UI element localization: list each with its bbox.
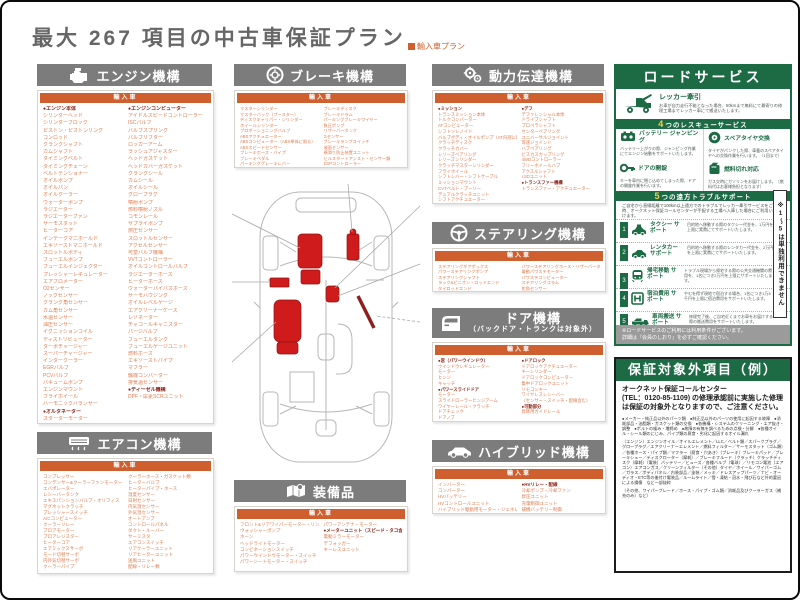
exclusions-lead: オークネット保証コールセンター (TEL：0120-85-1109) の修理承認… <box>622 385 784 412</box>
parts-list-item: ISCバルブ <box>128 120 208 127</box>
parts-list-item: クランクシャフト <box>43 142 123 149</box>
section-header-powertrain: 動力伝達機構 <box>432 64 604 86</box>
imported-car-bar: 輸入車 <box>435 345 603 355</box>
parts-list-item: 燃圧センサー <box>128 228 208 235</box>
parts-list-item: タイロッドエンド <box>438 286 517 291</box>
rescue-cell-battery: バッテリー ジャンピング バッテリー上がりの際、ジャンピング作業にてエンジン始動… <box>616 129 703 160</box>
section-header-aircon: エアコン機構 <box>37 432 212 454</box>
parts-list-item: サーモスタット <box>43 221 123 228</box>
parts-list-item: コンロッド <box>43 135 123 142</box>
parts-list-item: バルブスプリング <box>128 128 208 135</box>
parts-list-item: ドアノブ <box>438 415 517 421</box>
page-title: 最大 267 項目の中古車保証プラン <box>32 22 406 52</box>
parts-list-item: 昇降用ガイドレール <box>522 409 601 415</box>
parts-list-item: トランスファー・アクチュエーター <box>522 186 601 192</box>
trouble-support-bar: 5つの遠方トラブルサポート <box>616 191 790 201</box>
section-header-equipment: 装備品 <box>234 480 406 502</box>
parts-list-item: インタークーラー <box>43 358 123 365</box>
parts-list-item: コモンレール <box>128 214 208 221</box>
parts-list-item: バキュームポンプ <box>43 380 123 387</box>
trouble-row-rentacar: 2 レンタカー サポート 目的地へ移動する際のレンタカー代金を、2万円を上限に実… <box>616 242 790 265</box>
battery-icon <box>620 131 636 144</box>
section-box-equipment: 輸入車 フロント&リアワイパーモーター・リンクウォッシャーポンプホーンヘッドライ… <box>234 506 408 572</box>
parts-list-item: ヘッドカバーガスケット <box>128 164 208 171</box>
parts-list-item: （センサー・スイッチ・配線含む） <box>522 398 601 404</box>
parts-list-item: ノックセンサー <box>43 293 123 300</box>
parts-list-item: ヘッドガスケット <box>128 156 208 163</box>
parts-list: パワーアンテナ・モーター●メーターユニット（スピード・タコ含む）電動ミラーモータ… <box>324 522 403 565</box>
imported-car-bar: 輸入車 <box>237 509 405 519</box>
parts-list-item: インテークマニホールド <box>43 236 123 243</box>
car-diagram <box>230 184 422 476</box>
parts-list-item: 舵角センサー <box>522 286 601 291</box>
parts-list-item: 触媒コンバーター <box>128 373 208 380</box>
parts-list-item: シリンダーブロック <box>43 120 123 127</box>
plan-badge-square-icon <box>408 43 415 50</box>
parts-list-item: 配線・リレー類 <box>128 564 208 570</box>
train-number-3: 3 <box>620 269 628 289</box>
parts-list-item: カム角センサー <box>43 308 123 315</box>
section-box-brake: 輸入車 マスターシリンダーマスターバック（ブースター）ディスクキャリパー・シリン… <box>234 90 408 168</box>
parts-list-item: PCVバルブ <box>43 373 123 380</box>
aircon-icon <box>67 435 91 451</box>
parts-list-item: エアクリーナーケース <box>128 308 208 315</box>
imported-car-bar: 輸入車 <box>40 461 211 471</box>
parts-list-item: フューエルインジェクター <box>43 264 123 271</box>
section-title: 装備品 <box>313 482 355 501</box>
parts-list-item: バルブリフター <box>128 135 208 142</box>
hotel-icon <box>631 292 644 310</box>
imported-car-bar: 輸入車 <box>40 93 211 103</box>
parts-list-item: ラジエーターホース <box>128 272 208 279</box>
parts-list-item: クーラーパイプ <box>43 564 123 570</box>
side-note-tab: ※1〜5は単独利用できません <box>773 190 787 318</box>
parts-list-item: ヒーターホース <box>128 279 208 286</box>
parts-list-item: オイルコントロールバルブ <box>128 264 208 271</box>
parts-list: マスターシリンダーマスターバック（ブースター）ディスクキャリパー・シリンダーホイ… <box>240 106 319 167</box>
trouble-intro: ご自宅から直線距離で100km以上遠方でのトラブルでレッカー牽引サービスをご利用… <box>616 201 790 219</box>
parts-list: ●ドアロックドアロックアクチュエーターキーシリンダードアロックコンピューター集中… <box>522 358 601 421</box>
towing-row: レッカー牽引 お車が自力走行不能となった場合、50kmまで無料にて最寄りの修理工… <box>616 89 790 119</box>
section-title: ドア機構 <box>505 312 561 326</box>
parts-list-item: タイミングベルト <box>43 156 123 163</box>
parts-list-item: 水温センサー <box>43 315 123 322</box>
parts-list-item: エキゾーストマニホールド <box>43 243 123 250</box>
engine-icon <box>68 67 90 83</box>
section-title: ステアリング機構 <box>474 224 586 243</box>
section-box-door: 輸入車 ●窓（パワーウインドウ）ウインドウレギュレーターモーターヒンジキャッチ●… <box>432 342 606 422</box>
parts-list-item: オイルポンプ <box>43 178 123 185</box>
exclusions-footnote: （その他、ワイパーブレード／ホース・パイプ・ゴム類／消耗品及びクーラーガス（補充… <box>622 488 784 498</box>
parts-list-item: ●エンジン本体 <box>43 106 123 113</box>
brake-disc-icon <box>266 66 284 84</box>
section-header-door: ドア機構 （バックドア・トランクは対象外） <box>432 308 604 338</box>
parts-list-item: 排気温センサー <box>128 380 208 387</box>
parts-list-item: 可変バルブ機構 <box>128 250 208 257</box>
rescue-cell-key: ドアの開錠 キーを車内に閉じ込めてしまった際、ドアの開錠作業を行います。 <box>616 160 703 191</box>
parts-list-item: キーレスユニット <box>324 547 403 553</box>
parts-list-item: スロットルセンサー <box>128 236 208 243</box>
parts-list-item: カムシャフト <box>43 149 123 156</box>
parts-list-item: エンジンマウント <box>43 387 123 394</box>
parts-list-item: 油圧センサー <box>43 322 123 329</box>
parts-list-item: ●オルタネーター <box>43 409 123 416</box>
parts-list-item: イグニッションコイル <box>43 329 123 336</box>
parts-list-item: O2センサー <box>43 286 123 293</box>
section-header-steering: ステアリング機構 <box>432 222 604 244</box>
parts-list: ステアリングギアボックスパワーステアリングポンプステアリングシャフトラック&ピニ… <box>438 264 517 291</box>
rescue-cell-tire: スペアタイヤ交換 タイヤがパンクした際、車載のスペアタイヤへの交換作業を行います… <box>703 129 790 160</box>
hybrid-car-icon <box>446 444 472 458</box>
parts-list-item: ディストリビューター <box>43 337 123 344</box>
parts-list-item: 補機バッテリー制御 <box>522 507 601 513</box>
parts-list-item: シリンダーヘッド <box>43 113 123 120</box>
towing-label: レッカー牽引 <box>659 92 784 102</box>
parts-list-item: DPF・尿素SCRユニット <box>128 394 208 401</box>
section-header-brake: ブレーキ機構 <box>234 64 406 86</box>
parts-list: フロント&リアワイパーモーター・リンクウォッシャーポンプホーンヘッドライトモータ… <box>240 522 319 565</box>
parts-list-item: パーキングブレーキレバー <box>240 161 319 167</box>
parts-list-item: タイミングチェーン <box>43 164 123 171</box>
parts-list-item: グロープラグ <box>128 192 208 199</box>
parts-list-item: ABSコンピューター（ABS単体に限る） <box>240 139 319 145</box>
section-box-steering: 輸入車 ステアリングギアボックスパワーステアリングポンプステアリングシャフトラッ… <box>432 248 606 292</box>
towing-desc: お車が自力走行不能となった場合、50kmまで無料にて最寄りの修理工場までレッカー… <box>659 103 784 113</box>
parts-list-item: フューエルタンク <box>128 337 208 344</box>
parts-list-item: ラッシュアジャスター <box>128 149 208 156</box>
parts-list-item: スーパーチャージャー <box>43 351 123 358</box>
parts-list-item: ウォーターポンプ <box>43 200 123 207</box>
rescue-services-bar: 4つのレスキューサービス <box>616 119 790 129</box>
road-service-panel: ロードサービス レッカー牽引 お車が自力走行不能となった場合、50kmまで無料に… <box>614 64 792 346</box>
parts-list: インバーターコンバーターHVバッテリーHVコントロールユニットハイブリッド駆動用… <box>438 482 517 513</box>
road-service-title: ロードサービス <box>616 66 790 89</box>
parts-list-item: レゾネーター <box>128 315 208 322</box>
parts-list-item: オイルシール <box>128 185 208 192</box>
parts-list: パワーステアリングホース・リザーバータンク電動パワステモーターパワステコンピュー… <box>522 264 601 291</box>
parts-list-item: エキゾーストパイプ <box>128 358 208 365</box>
imported-car-bar: 輸入車 <box>435 251 603 261</box>
section-box-powertrain: 輸入車 ●ミッショントランスミッション本体トルクコンバーターATコンピューターシ… <box>432 90 606 204</box>
parts-list: ●デフデファレンシャル本体ドライブシャフトプロペラシャフトセンターベアリングユニ… <box>522 106 601 203</box>
parts-list: ブレーキディスクブレーキドラムパーキングブレーキワイヤー負圧ポンプリザーバータン… <box>324 106 403 167</box>
parts-list-item: クランク角センサー <box>43 300 123 307</box>
parts-list-item: スロットルボディ <box>43 250 123 257</box>
trouble-row-hotel: 4 宿泊費用 サポート やむを得ず現地で宿泊する場合、1名につき1万5千円を上限… <box>616 288 790 311</box>
parts-list-item: アイドルスピードコントローラー <box>128 113 208 120</box>
taxi-icon <box>631 223 647 241</box>
parts-list: ●HVリレー・配線冷却ポンプ・冷却ファン昇圧ユニット充電制御ユニット補機バッテリ… <box>522 482 601 513</box>
door-icon <box>439 313 463 333</box>
imported-car-bar: 輸入車 <box>237 93 405 103</box>
parts-list-item: フライホイール <box>43 394 123 401</box>
section-box-aircon: 輸入車 コンプレッサーコンデンサー&クーラーファンモーターエバポレーターレシーバ… <box>37 458 214 574</box>
section-title: エアコン機構 <box>97 434 181 453</box>
exclusions-bullets: ●メーカー・純正品以外のパーツ類 ●純正品以外のパーツの使用に起因する故障 ●消… <box>622 416 784 436</box>
parts-list-item: パージバルブ <box>128 329 208 336</box>
parts-list-item: 噴射ポンプ <box>128 200 208 207</box>
parts-list-item: ベルトテンショナー <box>43 171 123 178</box>
parts-list-item: カムシール <box>128 178 208 185</box>
parts-list: クーラーホース・ガスケット類ヒーターバルブヒーターパイプ・ホース温度センサー日射… <box>128 474 208 570</box>
gears-icon <box>463 66 483 84</box>
parts-list-item: パワーシートモーター・スイッチ <box>240 559 319 565</box>
exclusions-dense-text: （エンジン）エンジンオイル／オイルエレメント／LLC／ベルト類／スパークプラグ／… <box>622 439 784 485</box>
imported-car-bar: 輸入車 <box>435 93 603 103</box>
parts-list-item: ヒーターコア <box>43 228 123 235</box>
parts-list: コンプレッサーコンデンサー&クーラーファンモーターエバポレーターレシーバータンク… <box>43 474 123 570</box>
parts-list-item: VVTコントローラー <box>128 257 208 264</box>
plan-badge: 輸入車プラン <box>408 41 465 52</box>
warranty-plan-poster: 最大 267 項目の中古車保証プラン 輸入車プラン エンジン機構 輸入車 ●エン… <box>0 0 800 600</box>
section-title: ハイブリッド機構 <box>478 442 590 461</box>
section-box-hybrid: 輸入車 インバーターコンバーターHVバッテリーHVコントロールユニットハイブリッ… <box>432 466 606 514</box>
parts-list-item: ピストン・ピストンリング <box>43 128 123 135</box>
parts-list-item: サーモハウジング <box>128 293 208 300</box>
parts-list-item: エアフロメーター <box>43 279 123 286</box>
parts-list-item: クランクシール <box>128 171 208 178</box>
section-title: ブレーキ機構 <box>290 66 374 85</box>
parts-list: ●エンジンコンピューターアイドルスピードコントローラーISCバルブバルブスプリン… <box>128 106 208 423</box>
parts-list-item: プレッシャーレギュレーター <box>43 272 123 279</box>
rentacar-icon <box>631 246 647 264</box>
steering-wheel-icon <box>450 224 468 242</box>
fuel-can-icon <box>708 162 721 177</box>
trouble-row-taxi: 1 タクシー サポート 目的地へ移動する際のタクシー代金を、1万円を上限に実費に… <box>616 219 790 242</box>
parts-list-item: ロッカーアーム <box>128 142 208 149</box>
parts-list-item: ラジエーター <box>43 207 123 214</box>
parts-list-item: フューエルポンプ <box>43 257 123 264</box>
parts-list-item: ●エンジンコンピューター <box>128 106 208 113</box>
parts-list: ●ミッショントランスミッション本体トルクコンバーターATコンピューターシフトソレ… <box>438 106 517 203</box>
rescue-cell-fuel: 燃料切れ対応 ガス欠時にガソリンをお届けします。（燃料代はお客様負担となります） <box>703 160 790 191</box>
parts-list-item: オイルクーラー <box>43 192 123 199</box>
parts-list-item: ●ディーゼル機構 <box>128 387 208 394</box>
parts-list: ●エンジン本体シリンダーヘッドシリンダーブロックピストン・ピストンリングコンロッ… <box>43 106 123 423</box>
key-icon <box>620 162 635 176</box>
parts-list-item: ラジエーターファン <box>43 214 123 221</box>
trouble-row-train: 3 帰宅移動 サポート トラブル現場から帰宅する際の公共交通機関の費用を、1名に… <box>616 265 790 288</box>
equipment-map-icon <box>285 483 307 499</box>
section-subtitle: （バックドア・トランクは対象外） <box>469 326 597 334</box>
parts-list-item: アクセルセンサー <box>128 243 208 250</box>
parts-list-item: ESPコントローラー <box>324 161 403 167</box>
rescue-grid: バッテリー ジャンピング バッテリー上がりの際、ジャンピング作業にてエンジン始動… <box>616 129 790 191</box>
road-service-footnote: ※ロードサービスのご利用には利用条件がございます。 詳細は『会員のしおり』を必ず… <box>616 325 790 344</box>
parts-list-item: マフラー <box>128 365 208 372</box>
tow-truck-icon <box>622 92 654 118</box>
parts-list-item: ハーモニックバランサー <box>43 401 123 408</box>
parts-list: ●窓（パワーウインドウ）ウインドウレギュレーターモーターヒンジキャッチ●パワース… <box>438 358 517 421</box>
tire-icon <box>708 131 721 146</box>
parts-list-item: EGRバルブ <box>43 365 123 372</box>
parts-list-item: ウォーターバイパスホース <box>128 286 208 293</box>
parts-list-item: チャコールキャニスター <box>128 322 208 329</box>
exclusions-panel: 保証対象外項目（例） オークネット保証コールセンター (TEL：0120-85-… <box>614 357 792 573</box>
parts-list-item: 燃料ホース <box>128 351 208 358</box>
section-title: 動力伝達機構 <box>489 66 573 85</box>
parts-list-item: 燃料噴射ノズル <box>128 207 208 214</box>
parts-list-item: ハイブリッド駆動用モーター・ジェネレーター <box>438 507 517 513</box>
parts-list-item: オイルパン <box>43 185 123 192</box>
plan-badge-label: 輸入車プラン <box>417 41 465 52</box>
exclusions-title: 保証対象外項目（例） <box>616 359 790 381</box>
parts-list-item: オイルレベルゲージ <box>128 300 208 307</box>
parts-list-item: フューエルゲージユニット <box>128 344 208 351</box>
train-icon <box>631 269 644 288</box>
parts-list-item: サプライポンプ <box>128 221 208 228</box>
section-header-hybrid: ハイブリッド機構 <box>432 440 604 462</box>
parts-list-item: ターボチャージャー <box>43 344 123 351</box>
section-title: エンジン機構 <box>96 66 180 85</box>
parts-list-item: スターターモーター <box>43 416 123 423</box>
imported-car-bar: 輸入車 <box>435 469 603 479</box>
parts-list-item: シフトアクチュエーター <box>438 197 517 203</box>
section-box-engine: 輸入車 ●エンジン本体シリンダーヘッドシリンダーブロックピストン・ピストンリング… <box>37 90 214 424</box>
section-header-engine: エンジン機構 <box>37 64 212 86</box>
